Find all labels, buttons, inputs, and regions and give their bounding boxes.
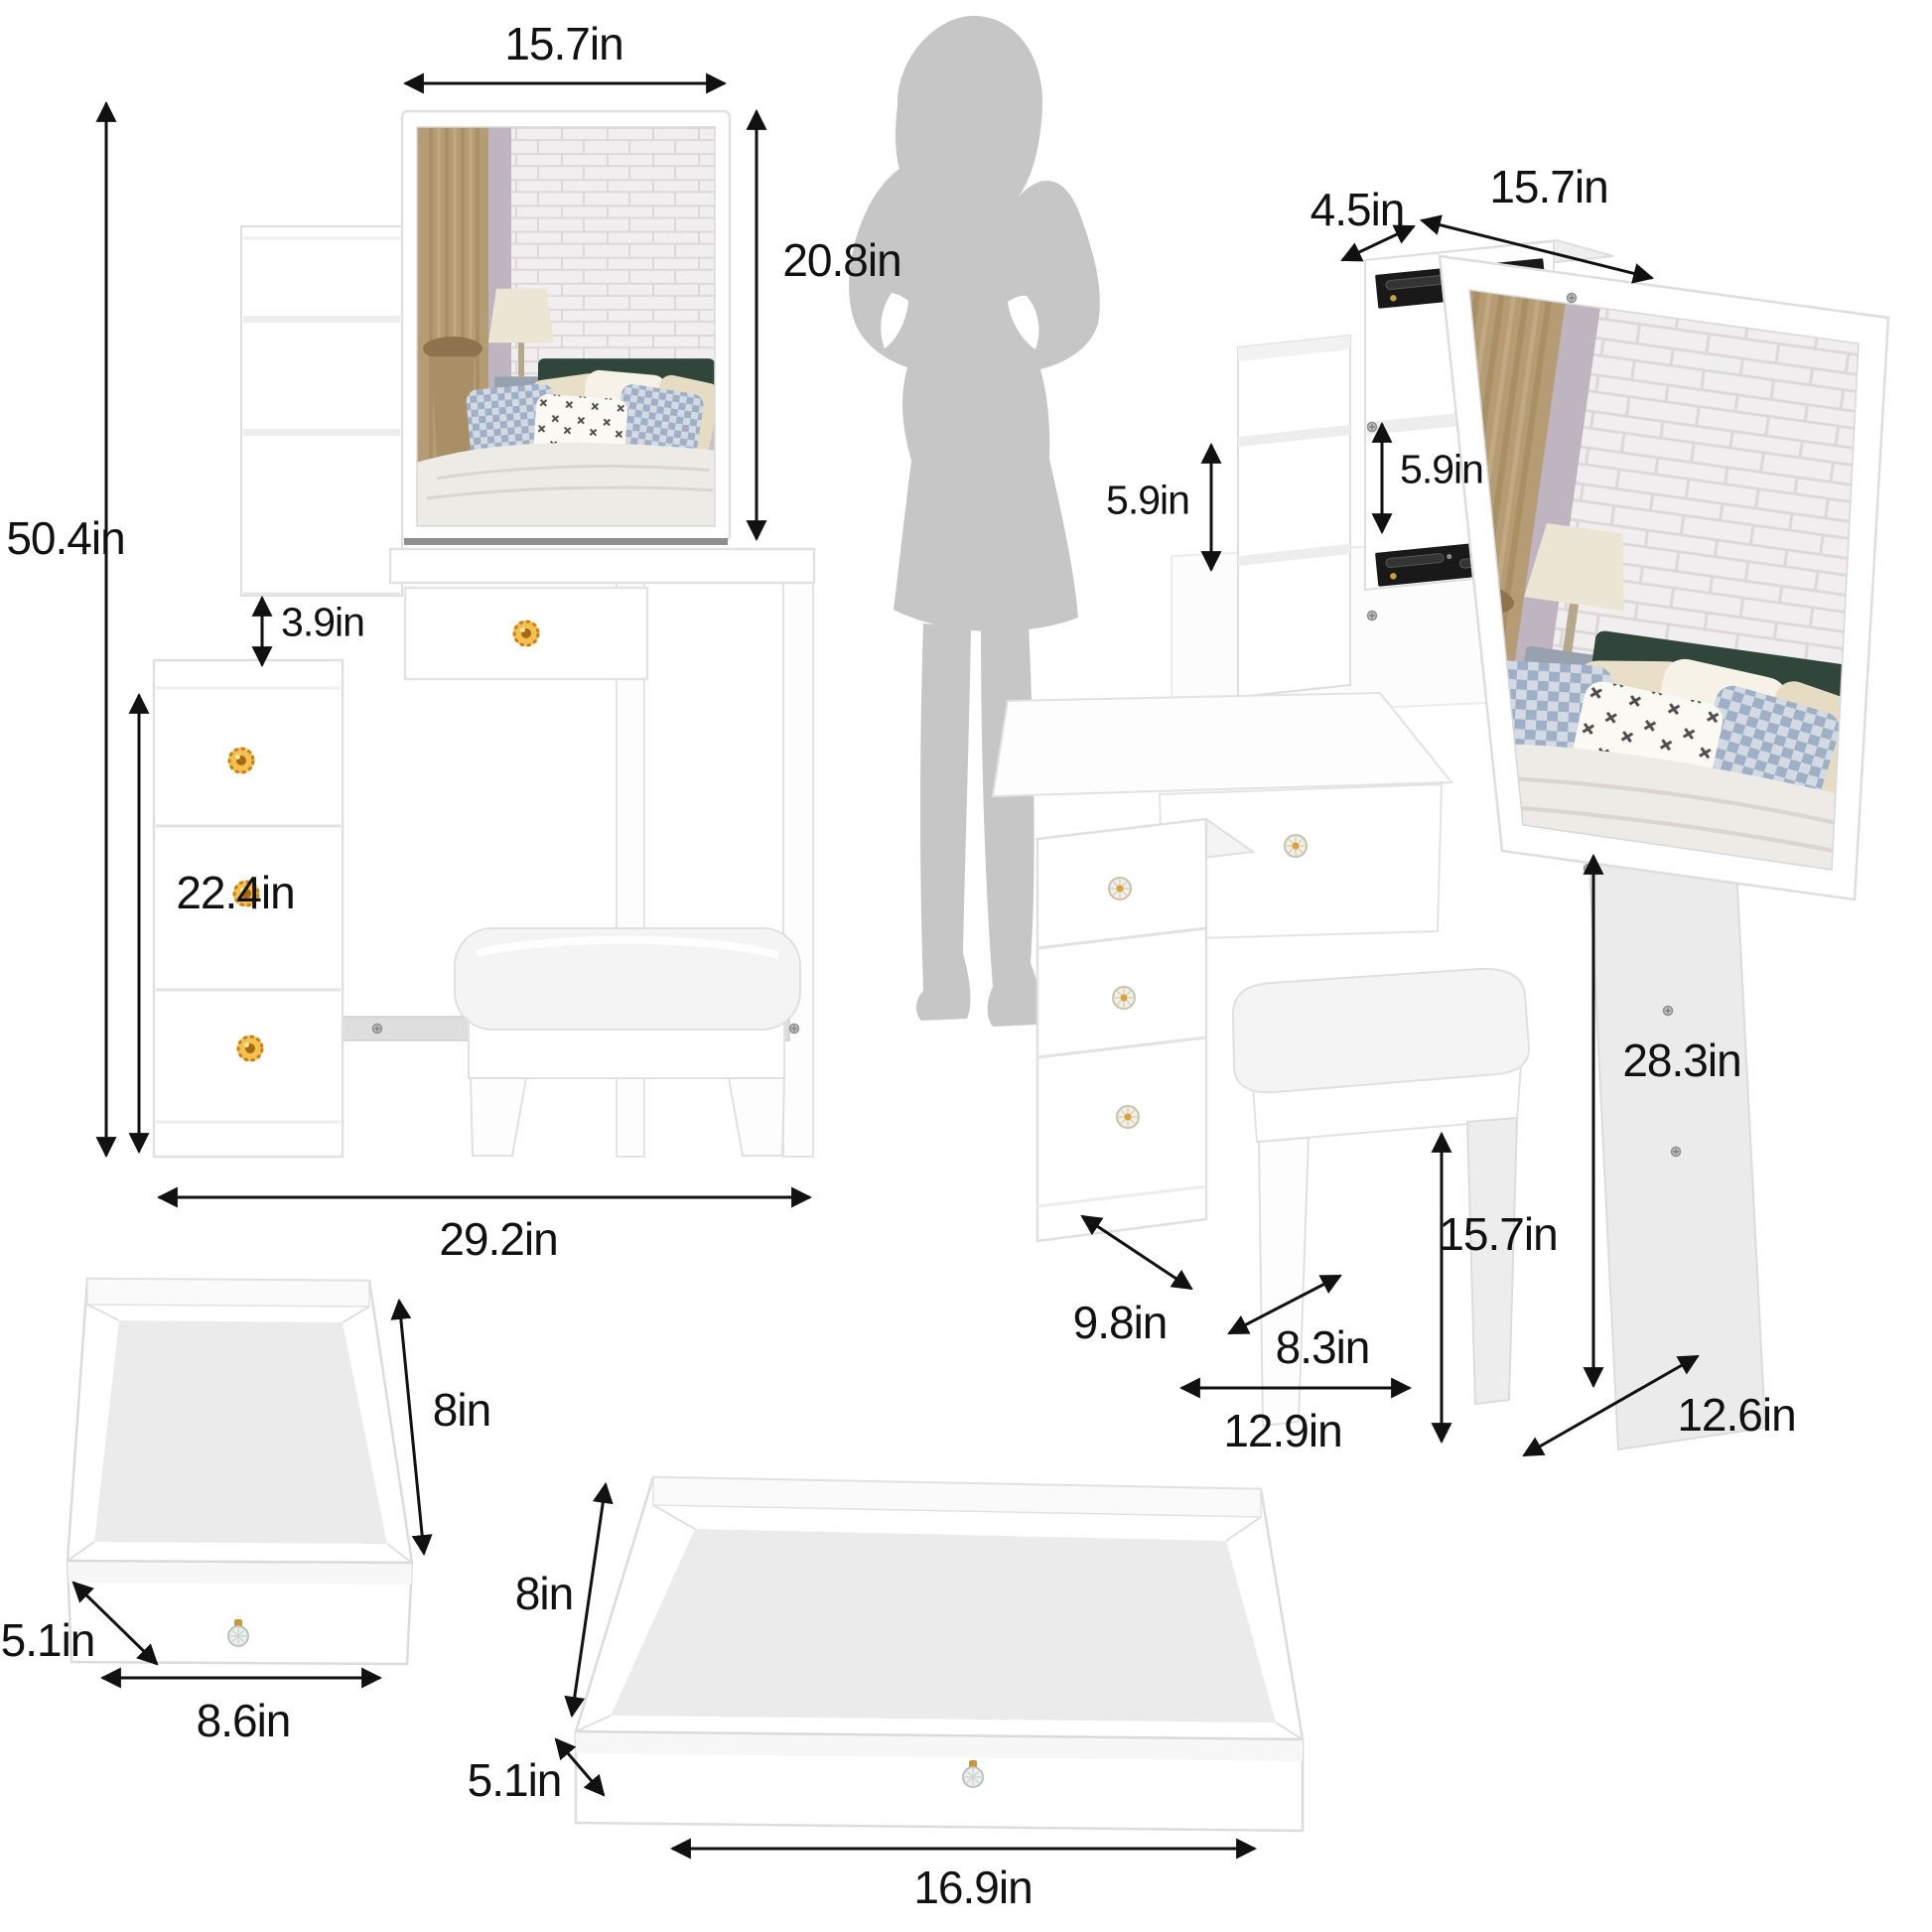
diagram-artwork bbox=[0, 0, 1932, 1932]
dim-front-shelf-gap: 3.9in bbox=[281, 603, 364, 643]
large-drawer-view bbox=[576, 1477, 1303, 1831]
dim-front-total-height: 50.4in bbox=[6, 515, 124, 561]
dim-side-stool-height: 15.7in bbox=[1439, 1211, 1557, 1257]
dim-large-drawer-depth: 8in bbox=[515, 1571, 573, 1616]
dim-small-drawer-height: 5.1in bbox=[1, 1617, 95, 1663]
dim-side-base-depth: 12.9in bbox=[1223, 1408, 1341, 1453]
vanity-front-view bbox=[154, 111, 814, 1157]
drawer-knob-icon bbox=[1113, 987, 1135, 1009]
dim-side-cabinet-depth: 9.8in bbox=[1073, 1300, 1168, 1345]
dim-side-top-depth: 4.5in bbox=[1311, 187, 1405, 232]
dim-front-mirror-height: 20.8in bbox=[782, 237, 900, 283]
dim-front-mirror-width: 15.7in bbox=[504, 21, 622, 67]
dim-side-mirror-width: 15.7in bbox=[1489, 164, 1607, 209]
dim-front-total-width: 29.2in bbox=[439, 1216, 557, 1262]
dim-small-drawer-depth: 8in bbox=[433, 1387, 490, 1433]
dim-side-desk-height: 28.3in bbox=[1622, 1037, 1740, 1083]
dim-side-panel-depth: 12.6in bbox=[1677, 1392, 1795, 1438]
drawer-knob-icon bbox=[237, 1035, 263, 1061]
dim-large-drawer-width: 16.9in bbox=[913, 1864, 1032, 1910]
drawer-knob-icon bbox=[1117, 1106, 1139, 1128]
vanity-side-view bbox=[993, 240, 1923, 1449]
drawer-knob-icon bbox=[1285, 835, 1307, 857]
drawer-knob-icon bbox=[513, 621, 539, 646]
dim-small-drawer-width: 8.6in bbox=[197, 1698, 291, 1743]
product-dimension-diagram: 15.7in 20.8in 50.4in 3.9in 22.4in 29.2in… bbox=[0, 0, 1932, 1932]
drawer-knob-icon bbox=[1109, 878, 1131, 899]
dim-front-cabinet-height: 22.4in bbox=[176, 870, 294, 915]
dim-side-right-shelf: 5.9in bbox=[1400, 450, 1483, 490]
dim-large-drawer-height: 5.1in bbox=[468, 1757, 562, 1803]
dim-side-left-shelf: 5.9in bbox=[1106, 481, 1189, 521]
mirror-front bbox=[402, 111, 730, 545]
small-drawer-view bbox=[68, 1279, 412, 1664]
drawer-knob-icon bbox=[228, 748, 254, 773]
dim-side-stool-depth: 8.3in bbox=[1276, 1324, 1370, 1370]
